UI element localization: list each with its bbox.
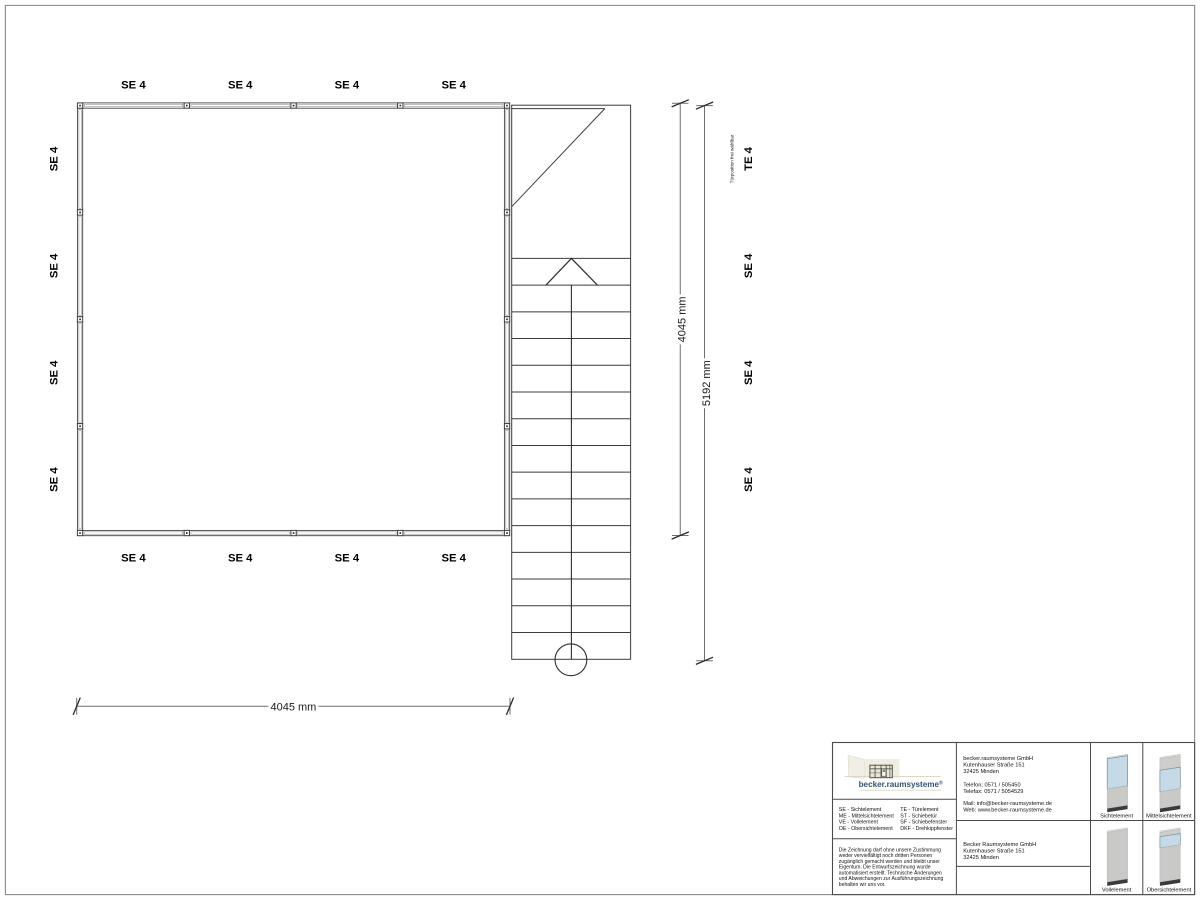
svg-text:SE - Sichtelement: SE - Sichtelement [839, 807, 882, 813]
svg-text:Becker Raumsysteme GmbH: Becker Raumsysteme GmbH [963, 842, 1036, 848]
svg-text:SE 4: SE 4 [335, 79, 360, 91]
svg-text:DKF - Drehkippfenster: DKF - Drehkippfenster [900, 826, 953, 832]
svg-text:4045 mm: 4045 mm [677, 296, 689, 342]
svg-text:SE 4: SE 4 [335, 552, 360, 564]
svg-text:becker.raumsysteme®: becker.raumsysteme® [859, 779, 943, 789]
svg-text:Kutenhauser Straße 151: Kutenhauser Straße 151 [963, 849, 1024, 855]
svg-text:SE 4: SE 4 [49, 360, 61, 385]
svg-text:ME - Mittelsichtelement: ME - Mittelsichtelement [839, 813, 895, 819]
svg-text:SF - Schiebefenster: SF - Schiebefenster [900, 820, 947, 826]
svg-text:SE 4: SE 4 [441, 79, 466, 91]
svg-text:SE 4: SE 4 [743, 467, 755, 492]
svg-text:SE 4: SE 4 [49, 146, 61, 171]
svg-text:TE - Türelement: TE - Türelement [900, 807, 939, 813]
svg-text:SE 4: SE 4 [743, 360, 755, 385]
svg-text:32425 Minden: 32425 Minden [963, 769, 999, 775]
svg-text:SE 4: SE 4 [743, 253, 755, 278]
svg-text:SE 4: SE 4 [441, 552, 466, 564]
svg-text:SE 4: SE 4 [121, 552, 146, 564]
svg-text:OE - Obersichtelement: OE - Obersichtelement [839, 826, 893, 832]
svg-text:Mittelsichtelement: Mittelsichtelement [1146, 813, 1192, 819]
svg-text:SE 4: SE 4 [49, 467, 61, 492]
svg-text:VE - Vollelement: VE - Vollelement [839, 820, 879, 826]
svg-text:SE 4: SE 4 [121, 79, 146, 91]
svg-text:Mail: info@becker-raumsysteme.: Mail: info@becker-raumsysteme.de [963, 801, 1052, 807]
svg-text:5192 mm: 5192 mm [701, 360, 713, 406]
svg-text:Telefax: 0571 / 5054529: Telefax: 0571 / 5054529 [963, 789, 1023, 795]
svg-text:Sichtelement: Sichtelement [1100, 813, 1133, 819]
svg-text:Vollelement: Vollelement [1102, 888, 1132, 894]
svg-text:Kutenhauser Straße 151: Kutenhauser Straße 151 [963, 763, 1024, 769]
svg-text:Türposition frei wählbar: Türposition frei wählbar [730, 134, 735, 183]
svg-text:Web: www.becker-raumsysteme.de: Web: www.becker-raumsysteme.de [963, 807, 1052, 813]
svg-text:becker.raumsysteme GmbH: becker.raumsysteme GmbH [963, 756, 1033, 762]
svg-text:SE 4: SE 4 [228, 79, 253, 91]
svg-text:ST - Schiebetür: ST - Schiebetür [900, 813, 937, 819]
svg-text:Obersichtelement: Obersichtelement [1147, 888, 1192, 894]
svg-text:behalten wir uns vor.: behalten wir uns vor. [839, 882, 886, 888]
svg-text:Telefon: 0571 / 505450: Telefon: 0571 / 505450 [963, 783, 1020, 789]
svg-text:4045 mm: 4045 mm [270, 701, 316, 713]
svg-text:SE 4: SE 4 [228, 552, 253, 564]
svg-text:TE 4: TE 4 [743, 146, 755, 171]
svg-text:32425 Minden: 32425 Minden [963, 855, 999, 861]
svg-text:SE 4: SE 4 [49, 253, 61, 278]
